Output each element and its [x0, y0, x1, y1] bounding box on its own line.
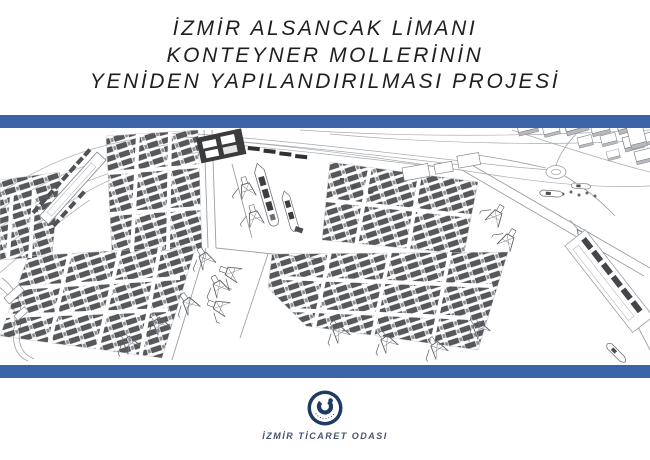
container-pier: [565, 230, 650, 333]
title-line-2: KONTEYNER MOLLERİNİN: [0, 43, 650, 70]
project-cover-page: İZMİR ALSANCAK LİMANI KONTEYNER MOLLERİN…: [0, 0, 650, 460]
logo-inner-disc: [311, 394, 339, 422]
roundabout: [546, 166, 566, 179]
izto-logo-svg: [306, 389, 344, 427]
bottom-accent-bar: [0, 365, 650, 378]
dark-terminal-building: [196, 128, 246, 163]
title-block: İZMİR ALSANCAK LİMANI KONTEYNER MOLLERİN…: [0, 16, 650, 96]
container-yards: [0, 130, 508, 359]
title-line-3: YENİDEN YAPILANDIRILMASI PROJESİ: [0, 69, 650, 96]
port-illustration: [0, 128, 650, 365]
top-accent-bar: [0, 115, 650, 128]
port-drawing-svg: [0, 128, 650, 365]
title-line-1: İZMİR ALSANCAK LİMANI: [0, 16, 650, 43]
izto-logo: [306, 389, 344, 427]
org-name-label: İZMİR TİCARET ODASI: [0, 431, 650, 441]
